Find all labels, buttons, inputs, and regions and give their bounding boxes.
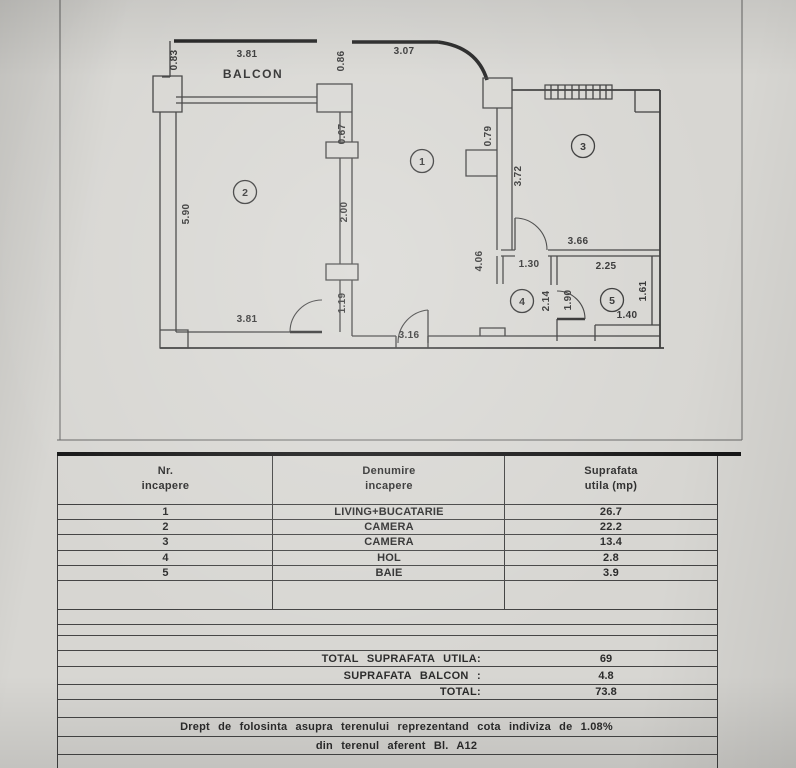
balcony-glazing	[174, 41, 438, 42]
header-suprafata: Suprafatautila (mp)	[505, 456, 717, 504]
table-row: 1LIVING+BUCATARIE26.7	[58, 505, 717, 520]
table-cell: 2	[58, 520, 273, 534]
empty-row	[58, 700, 717, 718]
table-cell: 4	[58, 551, 273, 565]
balcon-value: 4.8	[526, 670, 686, 682]
floor-plan: BALCON 0.833.810.863.070.670.793.725.902…	[0, 0, 796, 450]
dimension-label: 5.90	[181, 204, 192, 225]
empty-row	[58, 610, 717, 625]
dimension-label: 3.16	[399, 330, 420, 341]
table-cell: CAMERA	[273, 520, 505, 534]
dimension-label: 1.61	[638, 281, 649, 302]
table-header-row: Nr.incapere Denumireincapere Suprafataut…	[58, 456, 717, 505]
room-number: 4	[519, 296, 525, 308]
total-value: 73.8	[526, 686, 686, 698]
dimension-label: 3.81	[237, 49, 258, 60]
table-cell: LIVING+BUCATARIE	[273, 505, 505, 519]
room-number: 2	[242, 187, 248, 199]
table-cell: 1	[58, 505, 273, 519]
total-utila-value: 69	[526, 653, 686, 665]
table-cell: 26.7	[505, 505, 717, 519]
table-cell: 5	[58, 566, 273, 580]
balcony-label: BALCON	[223, 67, 283, 81]
dimension-label: 1.90	[563, 290, 574, 311]
dimension-label: 1.40	[617, 310, 638, 321]
dimension-label: 3.81	[237, 314, 258, 325]
dimension-label: 0.83	[169, 50, 180, 71]
curved-glazing	[438, 42, 487, 80]
table-row: 3CAMERA13.4	[58, 535, 717, 550]
table-cell: CAMERA	[273, 535, 505, 549]
window-icon	[545, 85, 612, 99]
dimension-label: 0.67	[337, 124, 348, 145]
empty-row	[58, 625, 717, 636]
table-cell: BAIE	[273, 566, 505, 580]
table-row: 4HOL2.8	[58, 551, 717, 566]
dimension-label: 2.14	[541, 291, 552, 312]
outer-walls	[160, 90, 664, 348]
total-row: TOTAL: 73.8	[58, 685, 717, 700]
room-number: 5	[609, 295, 615, 307]
header-nr: Nr.incapere	[58, 456, 273, 504]
balcon-row: SUPRAFATA BALCON : 4.8	[58, 667, 717, 685]
total-utila-label: TOTAL SUPRAFATA UTILA:	[58, 653, 481, 665]
empty-row	[58, 581, 717, 610]
table-row: 5BAIE3.9	[58, 566, 717, 581]
table-row: 2CAMERA22.2	[58, 520, 717, 535]
dimension-label: 4.06	[474, 251, 485, 272]
dimension-label: 0.79	[483, 126, 494, 147]
dimension-label: 0.86	[336, 51, 347, 72]
dimension-label: 3.66	[568, 236, 589, 247]
balcon-label: SUPRAFATA BALCON :	[58, 670, 481, 682]
area-table: Nr.incapere Denumireincapere Suprafataut…	[57, 452, 718, 768]
dimension-label: 2.00	[339, 202, 350, 223]
table-cell: 13.4	[505, 535, 717, 549]
room-number: 3	[580, 141, 586, 153]
empty-row	[58, 636, 717, 651]
dimension-label: 3.72	[513, 166, 524, 187]
door-room3	[515, 218, 547, 250]
dimension-label: 2.25	[596, 261, 617, 272]
dimension-label: 1.19	[337, 293, 348, 314]
table-cell: 2.8	[505, 551, 717, 565]
table-cell: 3	[58, 535, 273, 549]
table-cell: HOL	[273, 551, 505, 565]
room-number: 1	[419, 156, 425, 168]
table-cell: 3.9	[505, 566, 717, 580]
dimension-label: 3.07	[394, 46, 415, 57]
note-line-2: din terenul aferent Bl. A12	[58, 737, 717, 755]
door-room2	[290, 300, 322, 332]
note-line-1: Drept de folosinta asupra terenului repr…	[58, 718, 717, 737]
walls	[153, 41, 660, 348]
total-utila-row: TOTAL SUPRAFATA UTILA: 69	[58, 651, 717, 667]
header-denumire: Denumireincapere	[273, 456, 505, 504]
table-cell: 22.2	[505, 520, 717, 534]
dimension-label: 1.30	[519, 259, 540, 270]
total-label: TOTAL:	[58, 686, 481, 698]
